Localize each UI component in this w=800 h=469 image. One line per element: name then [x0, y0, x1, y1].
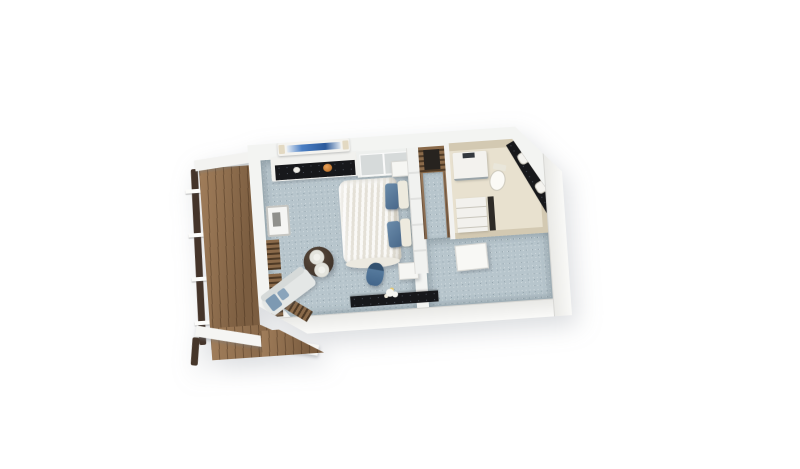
bed-pillow-white-lower: [400, 218, 412, 247]
tv-speaker-left: [278, 145, 285, 154]
closet-interior: [423, 149, 440, 170]
closet: [418, 146, 446, 174]
balcony-fascia-rail: [191, 337, 200, 365]
corridor-floor: [420, 172, 451, 240]
shower-fixture: [462, 153, 474, 159]
floor-plan: [177, 116, 593, 383]
bed-pillow-blue-upper: [385, 183, 398, 209]
shower: [452, 151, 488, 181]
stateroom-floor-plan-image: [0, 0, 800, 469]
window-panel: [359, 153, 384, 177]
railing-post: [188, 233, 203, 238]
bathroom: [444, 137, 548, 240]
entry-door: [454, 242, 489, 271]
tv-speaker-right: [342, 140, 349, 149]
vanity-sink-upper: [516, 148, 535, 166]
stateroom-walls: [247, 124, 572, 337]
tv-screen: [286, 142, 340, 153]
corridor-runner: [423, 172, 448, 239]
window-frame: [266, 239, 281, 270]
minibar-inset: [272, 212, 281, 227]
bed-pillow-white-upper: [397, 180, 409, 209]
minibar-cabinet: [266, 205, 291, 238]
railing-post: [191, 277, 206, 282]
bath-cabinet: [456, 197, 488, 233]
entry-floor: [424, 231, 552, 307]
